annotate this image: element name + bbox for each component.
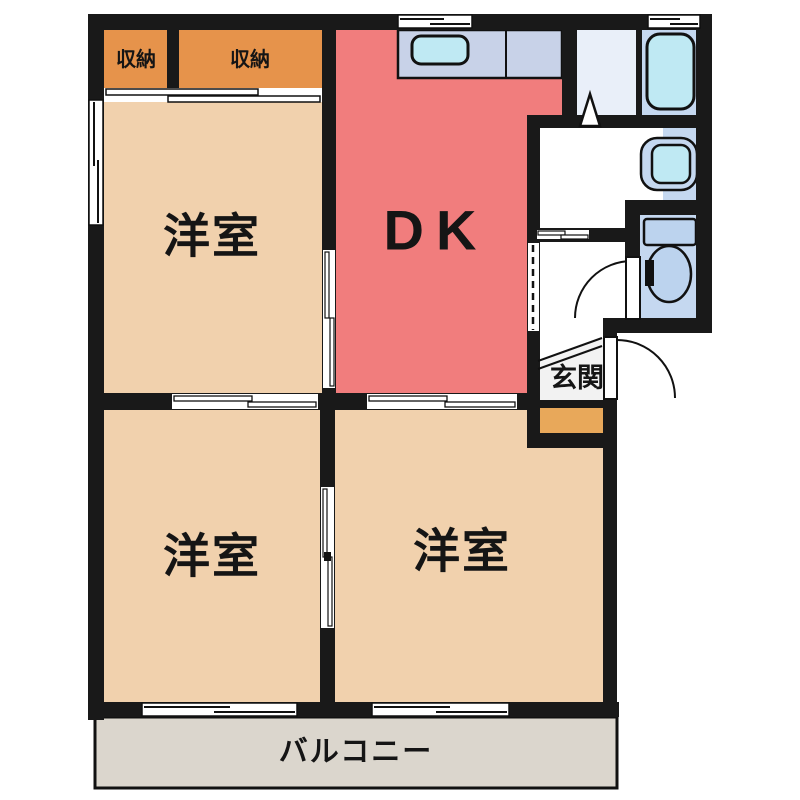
balcony-label: バルコニー [279,736,433,768]
wall [167,30,179,88]
window-icon [142,703,297,716]
wall [527,433,617,448]
bathtub-icon [647,34,694,109]
window-icon [648,15,700,28]
toilet-icon [644,219,696,302]
sliding-door-icon [537,230,589,239]
shoe-cabinet [540,408,603,433]
wall [636,30,642,115]
sliding-door-icon [104,88,322,102]
wall [696,14,712,333]
dk-label: DK [384,199,489,262]
wall [527,115,712,128]
sliding-door-icon [528,243,539,331]
washroom [577,30,637,115]
wall [603,318,712,333]
wall [562,14,577,128]
western-room-lower-left-label: 洋室 [163,530,261,583]
sliding-door-icon [323,250,335,388]
closet-left-label: 収納 [116,47,156,71]
floor-plan: 収納 収納 DK 洋室 洋室 洋室 玄関 バルコニー [0,0,800,800]
sliding-door-icon [367,394,517,409]
closet-right-label: 収納 [230,47,270,71]
window-icon [372,703,509,716]
toilet-tank [644,219,696,245]
entrance-label: 玄関 [550,362,604,393]
kitchen-sink-icon [412,36,468,64]
sliding-door-icon [172,394,318,409]
kitchen-counter [398,30,562,78]
western-room-upper-left-label: 洋室 [163,210,261,263]
western-room-lower-right-label: 洋室 [413,525,511,578]
washbasin-icon [641,138,697,190]
toilet-seat-hinge [645,260,654,286]
washbasin-bowl [652,145,690,183]
sliding-door-icon [321,487,334,628]
wall [625,200,640,262]
floor-plan-canvas: 収納 収納 DK 洋室 洋室 洋室 玄関 バルコニー [0,0,800,800]
swing-door-icon [604,337,675,399]
wall [538,400,603,408]
swing-door-icon [575,257,640,319]
window-icon [398,15,472,28]
window-icon [89,100,103,225]
